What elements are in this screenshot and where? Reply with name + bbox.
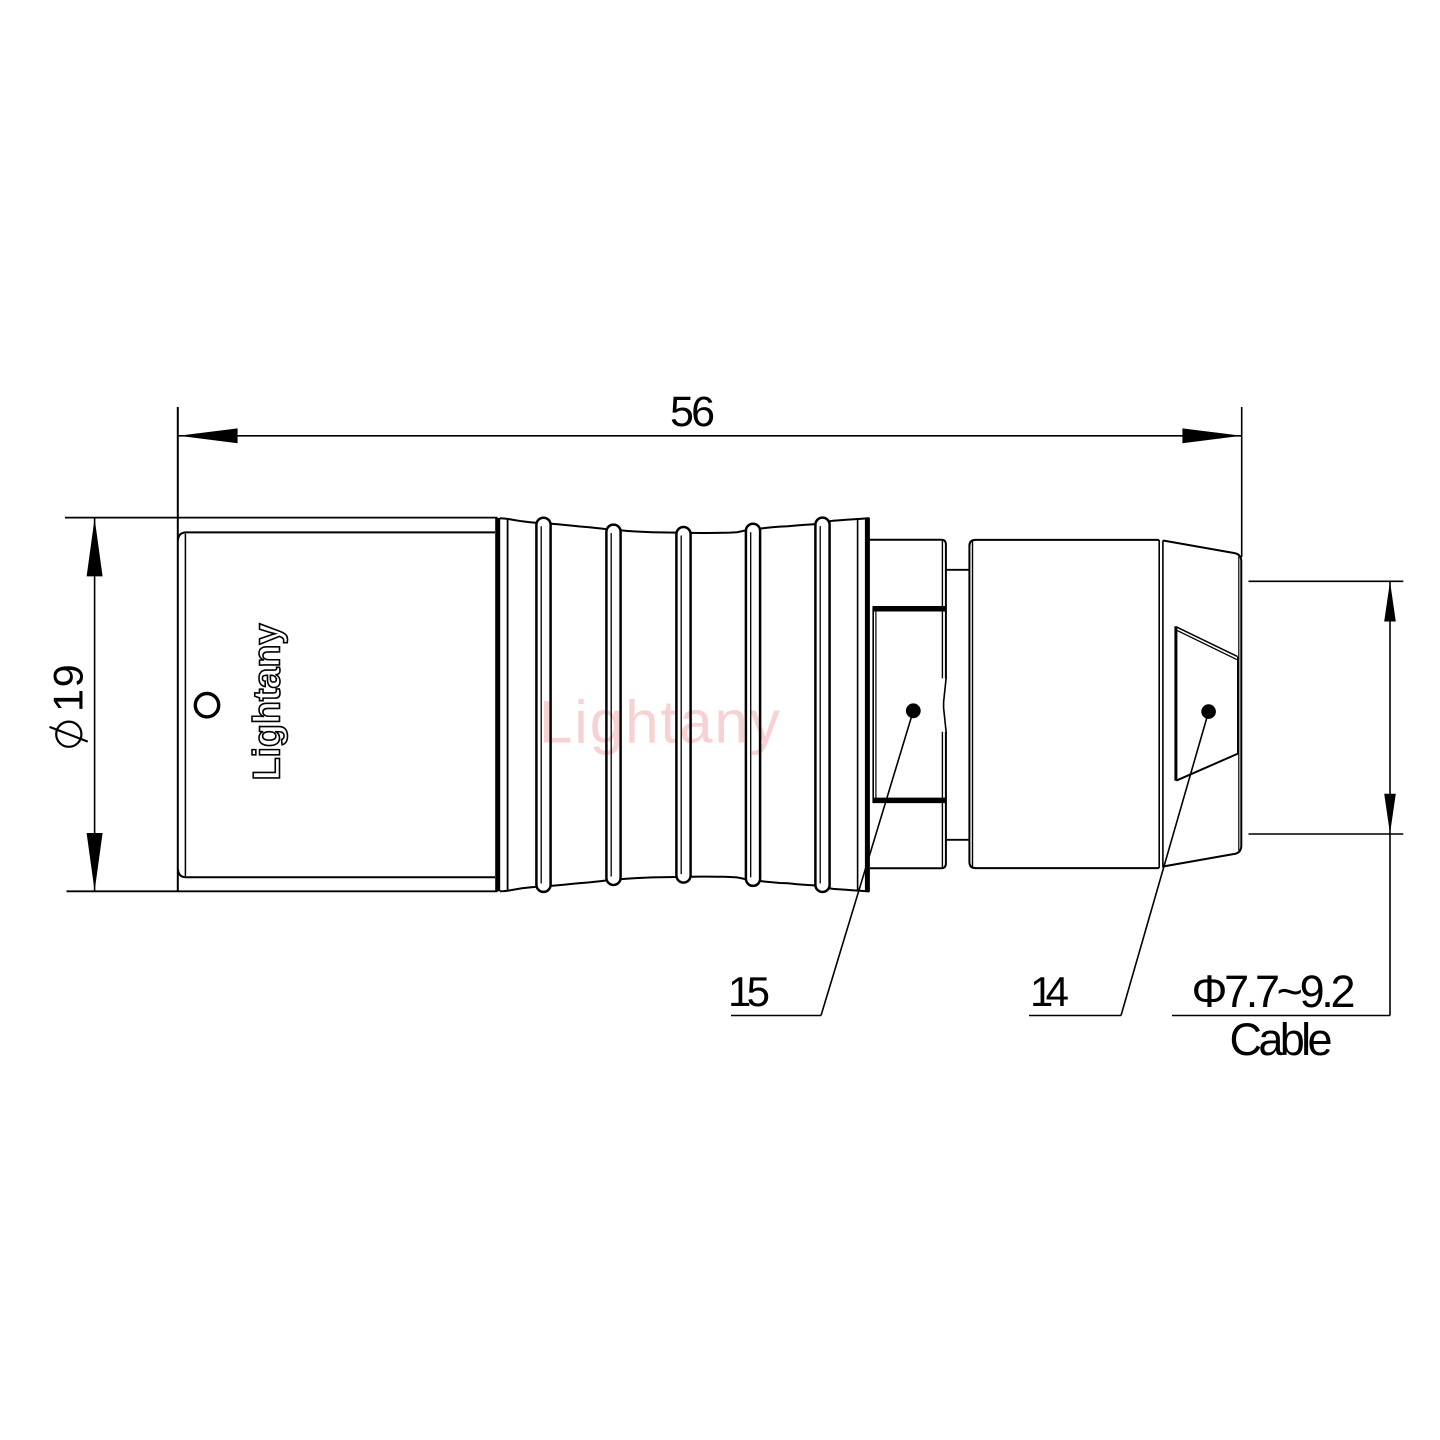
svg-text:Lightany: Lightany <box>247 624 289 781</box>
svg-text:19: 19 <box>45 663 92 712</box>
svg-text:56: 56 <box>670 388 715 436</box>
svg-text:Φ7.7~9.2: Φ7.7~9.2 <box>1192 966 1356 1017</box>
svg-text:15: 15 <box>728 968 770 1015</box>
svg-text:14: 14 <box>1030 968 1069 1015</box>
svg-text:Cable: Cable <box>1230 1014 1333 1065</box>
svg-text:Lightany: Lightany <box>539 689 782 756</box>
